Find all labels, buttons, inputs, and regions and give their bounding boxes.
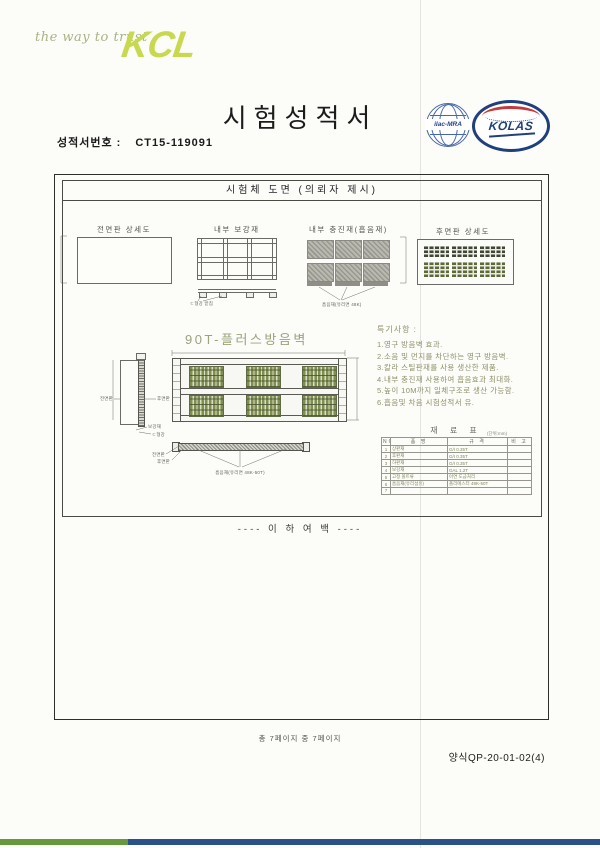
cell: 3	[382, 460, 391, 467]
reinforce-callout: ㄷ형강 받침	[190, 301, 213, 307]
cell	[508, 453, 532, 460]
form-number: 양식QP-20-01-02(4)	[449, 749, 545, 764]
filler-view-label: 내부 충진재(흡음재)	[309, 224, 388, 235]
report-number: 성적서번호 :CT15-119091	[57, 134, 213, 150]
perforated-grid	[424, 262, 449, 277]
note-line: 1.영구 방음벽 효과.	[377, 339, 537, 351]
cell	[508, 446, 532, 453]
cell: 고정 볼트류	[391, 474, 448, 481]
report-page: the way to trust KCL 시험성적서 성적서번호 :CT15-1…	[0, 0, 600, 848]
side-bottom-callout-2: ㄷ형강	[152, 432, 165, 438]
note-line: 5.높이 10M까지 일체구조로 생산 가능함.	[377, 385, 537, 397]
perforated-grid	[424, 246, 449, 257]
louver-panel	[302, 366, 337, 388]
stud	[197, 238, 202, 280]
note-line: 2.소음 및 먼지를 차단하는 영구 방음벽.	[377, 351, 537, 363]
cell: 상판재	[391, 446, 448, 453]
cell	[508, 481, 532, 488]
globe-latitude	[430, 134, 466, 135]
stud	[272, 238, 277, 280]
louver-panel	[246, 395, 281, 417]
filler-callout: 흡음재(유리면 48K)	[322, 302, 362, 308]
special-notes: 특기사항 : 1.영구 방음벽 효과. 2.소음 및 먼지를 차단하는 영구 방…	[377, 324, 537, 409]
perforated-grid	[480, 246, 505, 257]
absorber-block	[307, 240, 334, 259]
stud	[247, 238, 252, 280]
absorber-strip	[307, 282, 332, 286]
front-panel-drawing	[77, 237, 172, 284]
frame-rail	[180, 359, 339, 365]
table-row: 7	[382, 488, 532, 495]
louver-panel	[189, 395, 224, 417]
bottom-color-bar	[0, 839, 600, 845]
main-elevation-drawing	[172, 358, 347, 422]
reinforcement-drawing	[197, 238, 277, 280]
rail	[197, 257, 277, 263]
report-number-value: CT15-119091	[135, 137, 213, 149]
cell: 4	[382, 467, 391, 474]
absorber-strip	[335, 282, 360, 286]
cell	[508, 488, 532, 495]
frame-rail	[338, 359, 346, 421]
table-row: 5고정 볼트류아연 도금처리	[382, 474, 532, 481]
special-notes-title: 특기사항 :	[377, 324, 537, 335]
absorber-strip	[363, 282, 388, 286]
ilac-mra-logo: ilac-MRA	[426, 103, 470, 147]
section-callout-2: 후면판	[157, 459, 170, 465]
kolas-text: KOLAS	[474, 119, 547, 133]
base-foot	[199, 292, 207, 298]
side-bottom-callout-1: 보강재	[148, 424, 161, 430]
cell: 7	[382, 488, 391, 495]
table-header-row: NO 품 명 규 격 비 고	[382, 438, 532, 446]
material-table-title: 재 료 표	[381, 425, 531, 436]
side-rear-callout: 후면판	[157, 396, 170, 402]
cell	[508, 460, 532, 467]
perforated-grid	[452, 262, 477, 277]
cell: 5	[382, 474, 391, 481]
bottom-bar-navy	[128, 839, 600, 845]
front-view-label: 전면판 상세도	[97, 224, 151, 235]
perforated-grid	[480, 262, 505, 277]
rail	[197, 275, 277, 281]
globe-latitude	[430, 115, 466, 116]
side-view-cap	[136, 353, 146, 360]
louver-panel	[189, 366, 224, 388]
cell	[508, 474, 532, 481]
cell: G/I 0.35T	[448, 460, 508, 467]
ilac-mra-text: ilac-MRA	[425, 119, 471, 130]
note-line: 3.칼라 스틸판재를 사용 생산한 제품.	[377, 362, 537, 374]
cell: 보강재	[391, 467, 448, 474]
page-count: 총 7페이지 중 7페이지	[0, 733, 600, 744]
absorber-block	[335, 263, 362, 282]
cell: G/I 0.35T	[448, 453, 508, 460]
section-callout-1: 전면판	[152, 452, 165, 458]
section-bar	[178, 443, 304, 451]
cell: 후판재	[391, 453, 448, 460]
cell	[508, 467, 532, 474]
base-foot	[246, 292, 254, 298]
cell: 1	[382, 446, 391, 453]
cell	[391, 488, 448, 495]
absorber-block	[335, 240, 362, 259]
material-table: NO 품 명 규 격 비 고 1상판재G/I 0.35T 2후판재G/I 0.3…	[381, 437, 532, 495]
blank-below-note: ---- 이 하 여 백 ----	[0, 521, 600, 535]
kolas-logo: KOLAS	[472, 100, 550, 152]
col-header: 비 고	[508, 438, 532, 446]
table-row: 3하판재G/I 0.35T	[382, 460, 532, 467]
note-line: 4.내부 충진재 사용하여 흡음효과 최대화.	[377, 374, 537, 386]
louver-panel	[246, 366, 281, 388]
reinforce-view-label: 내부 보강재	[214, 224, 260, 235]
absorber-block	[363, 240, 390, 259]
cell: 폴리에스터 48K-50T	[448, 481, 508, 488]
kolas-swoosh	[489, 132, 535, 137]
cell: 2	[382, 453, 391, 460]
table-row: 4보강재GAL 1.2T	[382, 467, 532, 474]
note-line: 6.흡음및 차음 시험성적서 유.	[377, 397, 537, 409]
col-header: NO	[382, 438, 391, 446]
cell: 하판재	[391, 460, 448, 467]
frame-rail	[180, 388, 339, 395]
report-number-label: 성적서번호 :	[57, 137, 121, 149]
absorber-block	[363, 263, 390, 282]
rail	[197, 238, 277, 244]
product-name-label: 90T-플러스방음벽	[185, 329, 308, 348]
side-view-panel-strip	[138, 358, 145, 427]
rear-panel-drawing	[417, 239, 514, 285]
cell	[448, 488, 508, 495]
table-row: 1상판재G/I 0.35T	[382, 446, 532, 453]
table-row: 2후판재G/I 0.35T	[382, 453, 532, 460]
col-header: 품 명	[391, 438, 448, 446]
bottom-bar-green	[0, 839, 128, 845]
section-note: 흡음재(유리면 48K-50T)	[205, 470, 275, 476]
col-header: 규 격	[448, 438, 508, 446]
louver-panel	[302, 395, 337, 417]
side-front-callout: 전면판	[96, 396, 113, 402]
cell: 6	[382, 481, 391, 488]
drawing-box-title: 시험체 도면 (의뢰자 제시)	[63, 181, 541, 201]
cell: GAL 1.2T	[448, 467, 508, 474]
perforated-grid	[452, 246, 477, 257]
kcl-logo: KCL	[119, 24, 198, 66]
cell: G/I 0.35T	[448, 446, 508, 453]
table-row: 6흡음재(유리섬유)폴리에스터 48K-50T	[382, 481, 532, 488]
rear-view-label: 후면판 상세도	[436, 226, 490, 237]
cell: 흡음재(유리섬유)	[391, 481, 448, 488]
absorber-block	[307, 263, 334, 282]
reinforcement-base-rail	[198, 289, 276, 293]
stud	[223, 238, 228, 280]
base-foot	[269, 292, 277, 298]
side-view-body	[120, 360, 139, 425]
base-foot	[219, 292, 227, 298]
cell: 아연 도금처리	[448, 474, 508, 481]
